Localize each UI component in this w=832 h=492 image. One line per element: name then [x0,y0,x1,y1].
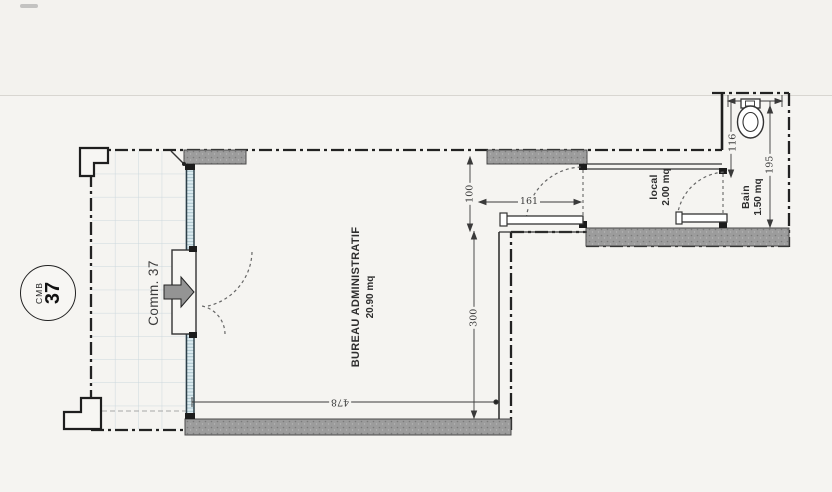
room-name: local [648,174,660,199]
toilet-tank-button [746,101,755,106]
dim-dot [494,400,498,404]
dim-arrow [767,106,772,113]
unit-badge: CMB 37 [20,265,76,321]
wall-top-right [487,150,587,164]
dim-value: 161 [518,197,540,207]
dim-value: 195 [765,154,775,176]
room-name: Bain [740,185,752,209]
dim-value: 478 [329,397,351,407]
dim-arrow [775,99,782,104]
room-name: BUREAU ADMINISTRATIF [350,227,363,367]
dim-label-116: 116 [713,133,753,153]
dim-arrow [728,99,735,104]
dim-label-161: 161 [509,192,549,212]
door-leaf [504,216,583,224]
pillar-bottom-left [64,398,101,429]
toilet-bowl-inner [743,113,758,132]
scanned-floor-plan-page: CMB 37 Comm. 37 BUREAU ADMINISTRATIF 20.… [0,0,832,492]
entrance-label: Comm. 37 [104,243,204,343]
dim-arrow [467,224,472,231]
dim-label-478: 478 [320,392,360,412]
entrance-swing-large [208,252,252,306]
dim-value: 100 [465,183,475,205]
door-leaf-stop [500,213,507,226]
wall-top-left [184,150,246,164]
dim-label-195: 195 [750,155,790,175]
dim-arrow [471,411,476,418]
room-label-bureau: BUREAU ADMINISTRATIF 20.90 mq [283,217,443,377]
dim-value: 300 [469,307,479,329]
unit-badge-number: 37 [44,282,62,304]
dim-value: 116 [728,132,738,154]
corner-dot [182,162,186,166]
dim-arrow [471,232,476,239]
entrance-swing-small [202,306,225,334]
room-label-local: local 2.00 mq [620,147,700,227]
room-area: 20.90 mq [365,276,377,319]
mullion-top [185,164,195,170]
room-area: 1.50 mq [753,178,765,215]
room-area: 2.00 mq [661,168,673,205]
dim-label-100: 100 [450,184,490,204]
mullion-bottom [185,413,195,419]
unit-badge-text: CMB 37 [34,282,62,304]
dim-label-300: 300 [454,308,494,328]
dimension-lines [192,95,782,418]
dim-arrow [574,199,581,204]
dim-arrow [467,157,472,164]
wall-bureau-bottom [185,419,511,435]
